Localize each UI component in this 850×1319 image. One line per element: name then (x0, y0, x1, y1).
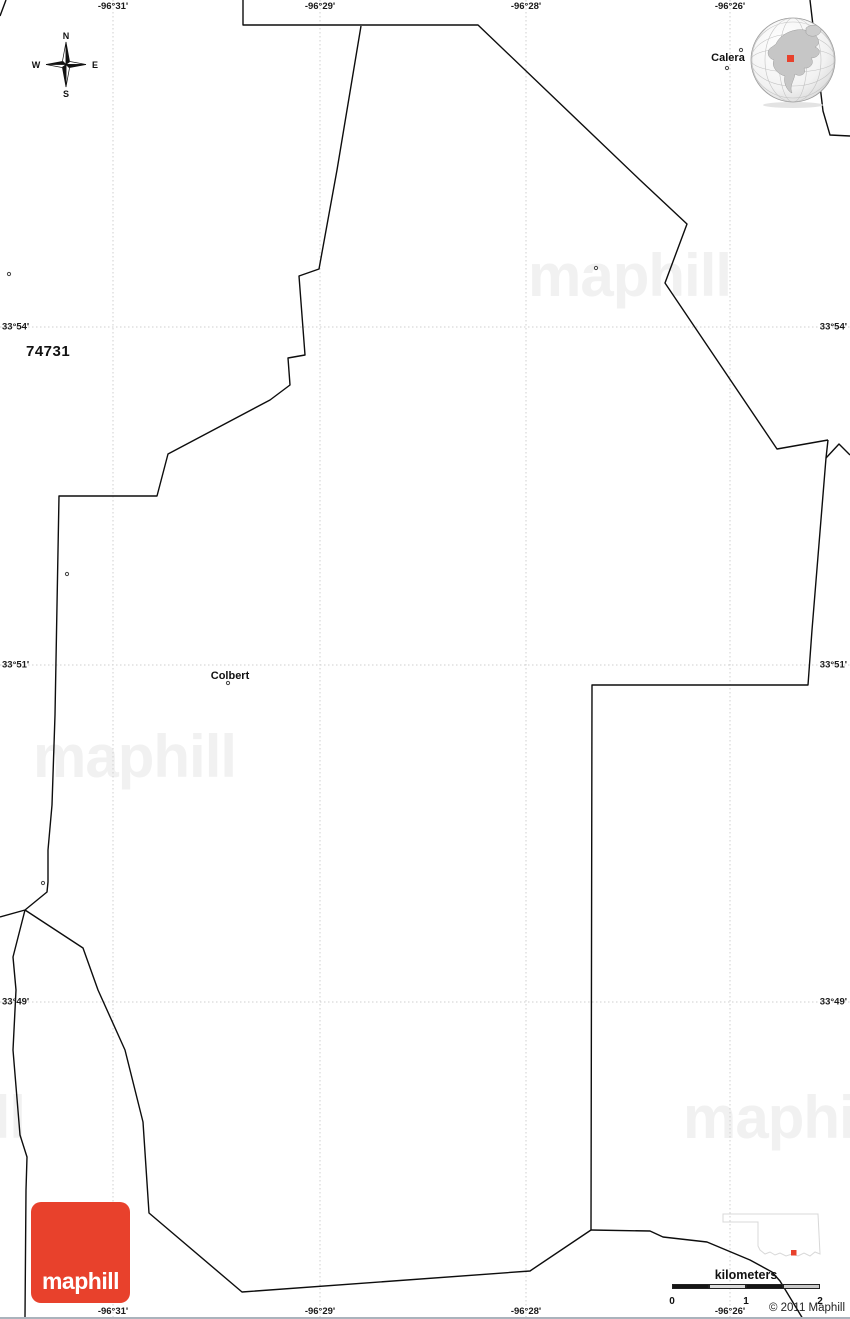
globe-shadow (763, 102, 823, 108)
boundary-line (0, 0, 6, 16)
point-marker (594, 266, 597, 269)
place-label-calera: Calera (711, 52, 745, 64)
map-canvas: maphillmaphillmaphillmaphill -96°31'-96°… (0, 0, 850, 1319)
compass-w-label: W (32, 60, 41, 70)
scale-bar-segment (672, 1284, 709, 1289)
parallel-label-right: 33°51' (820, 660, 847, 671)
boundary-line (243, 0, 828, 449)
meridian-label-bottom: -96°26' (715, 1306, 745, 1317)
state-outline (723, 1214, 820, 1256)
parallel-label-left: 33°49' (2, 997, 29, 1008)
scale-bar-tick-label: 0 (669, 1296, 675, 1307)
globe-location-marker (787, 55, 794, 62)
scale-bar-tick-label: 1 (743, 1296, 749, 1307)
parallel-label-left: 33°54' (2, 322, 29, 333)
meridian-label-bottom: -96°29' (305, 1306, 335, 1317)
place-label-colbert: Colbert (211, 670, 250, 682)
state-inset-map (720, 1210, 826, 1262)
map-boundaries-svg (0, 0, 850, 1317)
compass-n-label: N (63, 31, 70, 41)
boundary-line (826, 444, 850, 458)
parallel-label-left: 33°51' (2, 660, 29, 671)
scale-bar-units-label: kilometers (672, 1268, 820, 1282)
inset-location-marker (791, 1250, 797, 1256)
meridian-label-bottom: -96°28' (511, 1306, 541, 1317)
maphill-logo: maphill (31, 1202, 130, 1303)
copyright-text: © 2011 Maphill (769, 1302, 845, 1314)
parallel-label-right: 33°49' (820, 997, 847, 1008)
maphill-logo-text: maphill (31, 1268, 130, 1295)
point-marker (65, 572, 68, 575)
place-dot-calera (725, 66, 728, 69)
locator-globe (748, 14, 840, 110)
scale-bar-segment (746, 1284, 783, 1289)
point-marker (41, 881, 44, 884)
compass-rose-icon: N S W E (29, 27, 105, 103)
compass-e-label: E (92, 60, 98, 70)
meridian-label-top: -96°28' (511, 1, 541, 12)
compass-s-label: S (63, 89, 69, 99)
meridian-label-top: -96°26' (715, 1, 745, 12)
meridian-label-top: -96°29' (305, 1, 335, 12)
boundary-line (13, 910, 27, 1317)
meridian-label-top: -96°31' (98, 1, 128, 12)
scale-bar-segment (783, 1284, 820, 1289)
scale-bar-segments (672, 1284, 820, 1289)
parallel-label-right: 33°54' (820, 322, 847, 333)
scale-bar-segment (709, 1284, 746, 1289)
meridian-label-bottom: -96°31' (98, 1306, 128, 1317)
zip-code-label: 74731 (26, 343, 70, 360)
boundary-line (25, 26, 361, 910)
boundary-line (0, 910, 25, 917)
boundary-line (591, 440, 828, 1230)
scale-bar: kilometers 012 (672, 1268, 822, 1289)
point-marker (7, 272, 10, 275)
